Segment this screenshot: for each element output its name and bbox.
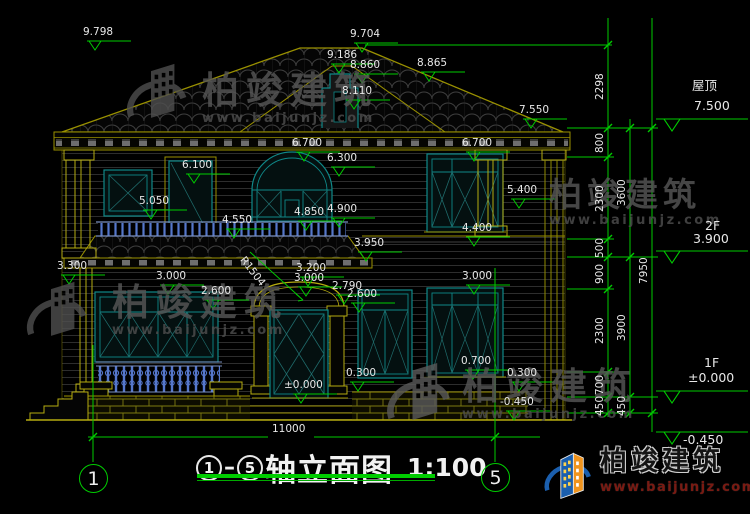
- watermark-url: www.baijunjz.com: [112, 323, 288, 338]
- watermark-logo-icon: [24, 276, 96, 362]
- watermark-logo-icon: [384, 356, 460, 448]
- cad-elevation-screenshot: 柏竣建筑 www.baijunjz.com 柏竣建筑 www.baijunjz.…: [0, 0, 750, 514]
- watermark: 柏竣建筑 www.baijunjz.com: [462, 368, 638, 422]
- axis-number: 1: [87, 468, 99, 490]
- porch-skirt-roof: [64, 236, 372, 268]
- axis-number: 5: [489, 467, 501, 489]
- title-underline: [197, 474, 435, 483]
- watermark: 柏竣建筑 www.baijunjz.com: [112, 284, 288, 338]
- watermark-text: 柏竣建筑: [202, 72, 378, 109]
- brand-logo: 柏竣建筑 www.baijunjz.com: [541, 447, 750, 503]
- watermark: 柏竣建筑 www.baijunjz.com: [202, 72, 378, 126]
- entry-steps: [30, 392, 88, 420]
- watermark-logo-icon: [124, 58, 196, 144]
- brand-name: 柏竣建筑: [600, 447, 750, 477]
- brand-url: www.baijunjz.com: [600, 480, 750, 495]
- watermark-text: 柏竣建筑: [462, 368, 638, 405]
- axis-bubble-1: 1: [79, 464, 108, 493]
- brand-logo-icon: [541, 447, 595, 503]
- watermark-url: www.baijunjz.com: [202, 111, 378, 126]
- watermark: 柏竣建筑 www.baijunjz.com: [549, 178, 722, 228]
- watermark-url: www.baijunjz.com: [549, 213, 722, 228]
- drawing-title: 1 – 5 轴立面图 1:100: [196, 445, 487, 490]
- watermark-url: www.baijunjz.com: [462, 407, 638, 422]
- watermark-text: 柏竣建筑: [549, 178, 722, 211]
- title-text: 轴立面图: [265, 445, 393, 490]
- watermark-text: 柏竣建筑: [112, 284, 288, 321]
- axis-bubble-5: 5: [481, 463, 510, 492]
